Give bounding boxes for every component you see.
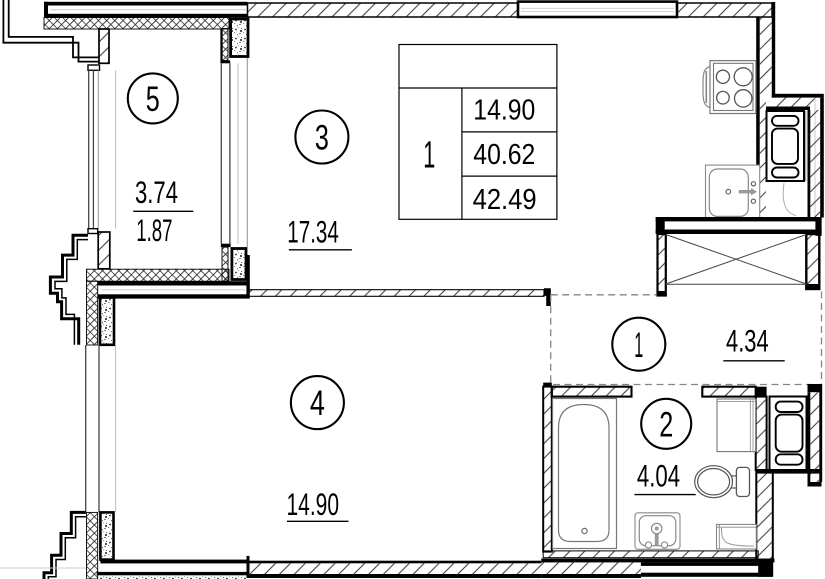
svg-text:4.34: 4.34	[726, 323, 769, 359]
svg-text:17.34: 17.34	[287, 213, 339, 249]
svg-text:4: 4	[310, 384, 325, 423]
svg-text:14.90: 14.90	[473, 94, 535, 126]
svg-text:5: 5	[146, 80, 160, 119]
svg-text:14.90: 14.90	[287, 486, 340, 522]
svg-text:3.74: 3.74	[135, 174, 178, 210]
svg-text:1.87: 1.87	[136, 212, 172, 248]
svg-text:42.49: 42.49	[473, 184, 537, 216]
svg-text:40.62: 40.62	[473, 139, 535, 171]
svg-text:3: 3	[315, 119, 329, 158]
svg-text:4.04: 4.04	[637, 457, 680, 493]
svg-text:2: 2	[659, 405, 673, 444]
svg-text:1: 1	[423, 135, 435, 177]
svg-text:1: 1	[634, 326, 643, 365]
